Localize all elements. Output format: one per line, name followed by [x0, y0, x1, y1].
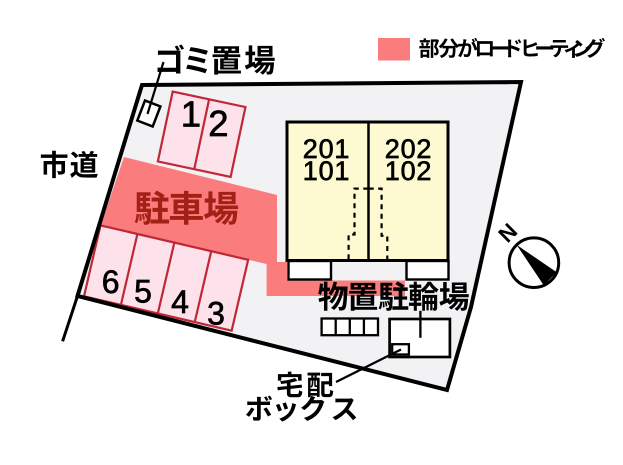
svg-text:1: 1: [181, 93, 201, 134]
svg-text:102: 102: [385, 156, 432, 186]
svg-text:4: 4: [171, 284, 189, 320]
svg-text:5: 5: [134, 274, 152, 310]
svg-text:2: 2: [208, 103, 228, 144]
svg-text:3: 3: [207, 295, 225, 331]
svg-text:6: 6: [102, 264, 120, 300]
svg-text:101: 101: [303, 156, 350, 186]
